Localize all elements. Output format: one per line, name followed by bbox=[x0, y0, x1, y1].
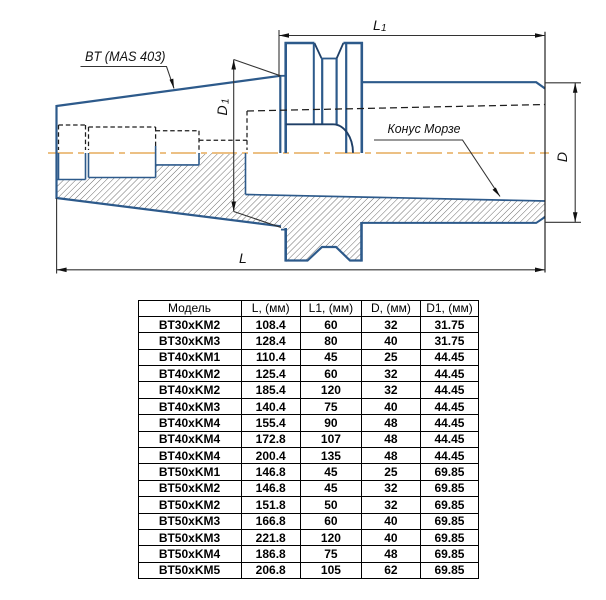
svg-text:D: D bbox=[554, 152, 570, 162]
svg-text:D: D bbox=[214, 105, 230, 115]
svg-text:Конус Морзе: Конус Морзе bbox=[388, 121, 461, 136]
svg-text:BT (MAS 403): BT (MAS 403) bbox=[85, 48, 166, 64]
svg-text:1: 1 bbox=[381, 23, 387, 34]
svg-text:L: L bbox=[373, 17, 381, 33]
svg-text:L: L bbox=[239, 250, 247, 266]
svg-text:1: 1 bbox=[221, 98, 232, 104]
